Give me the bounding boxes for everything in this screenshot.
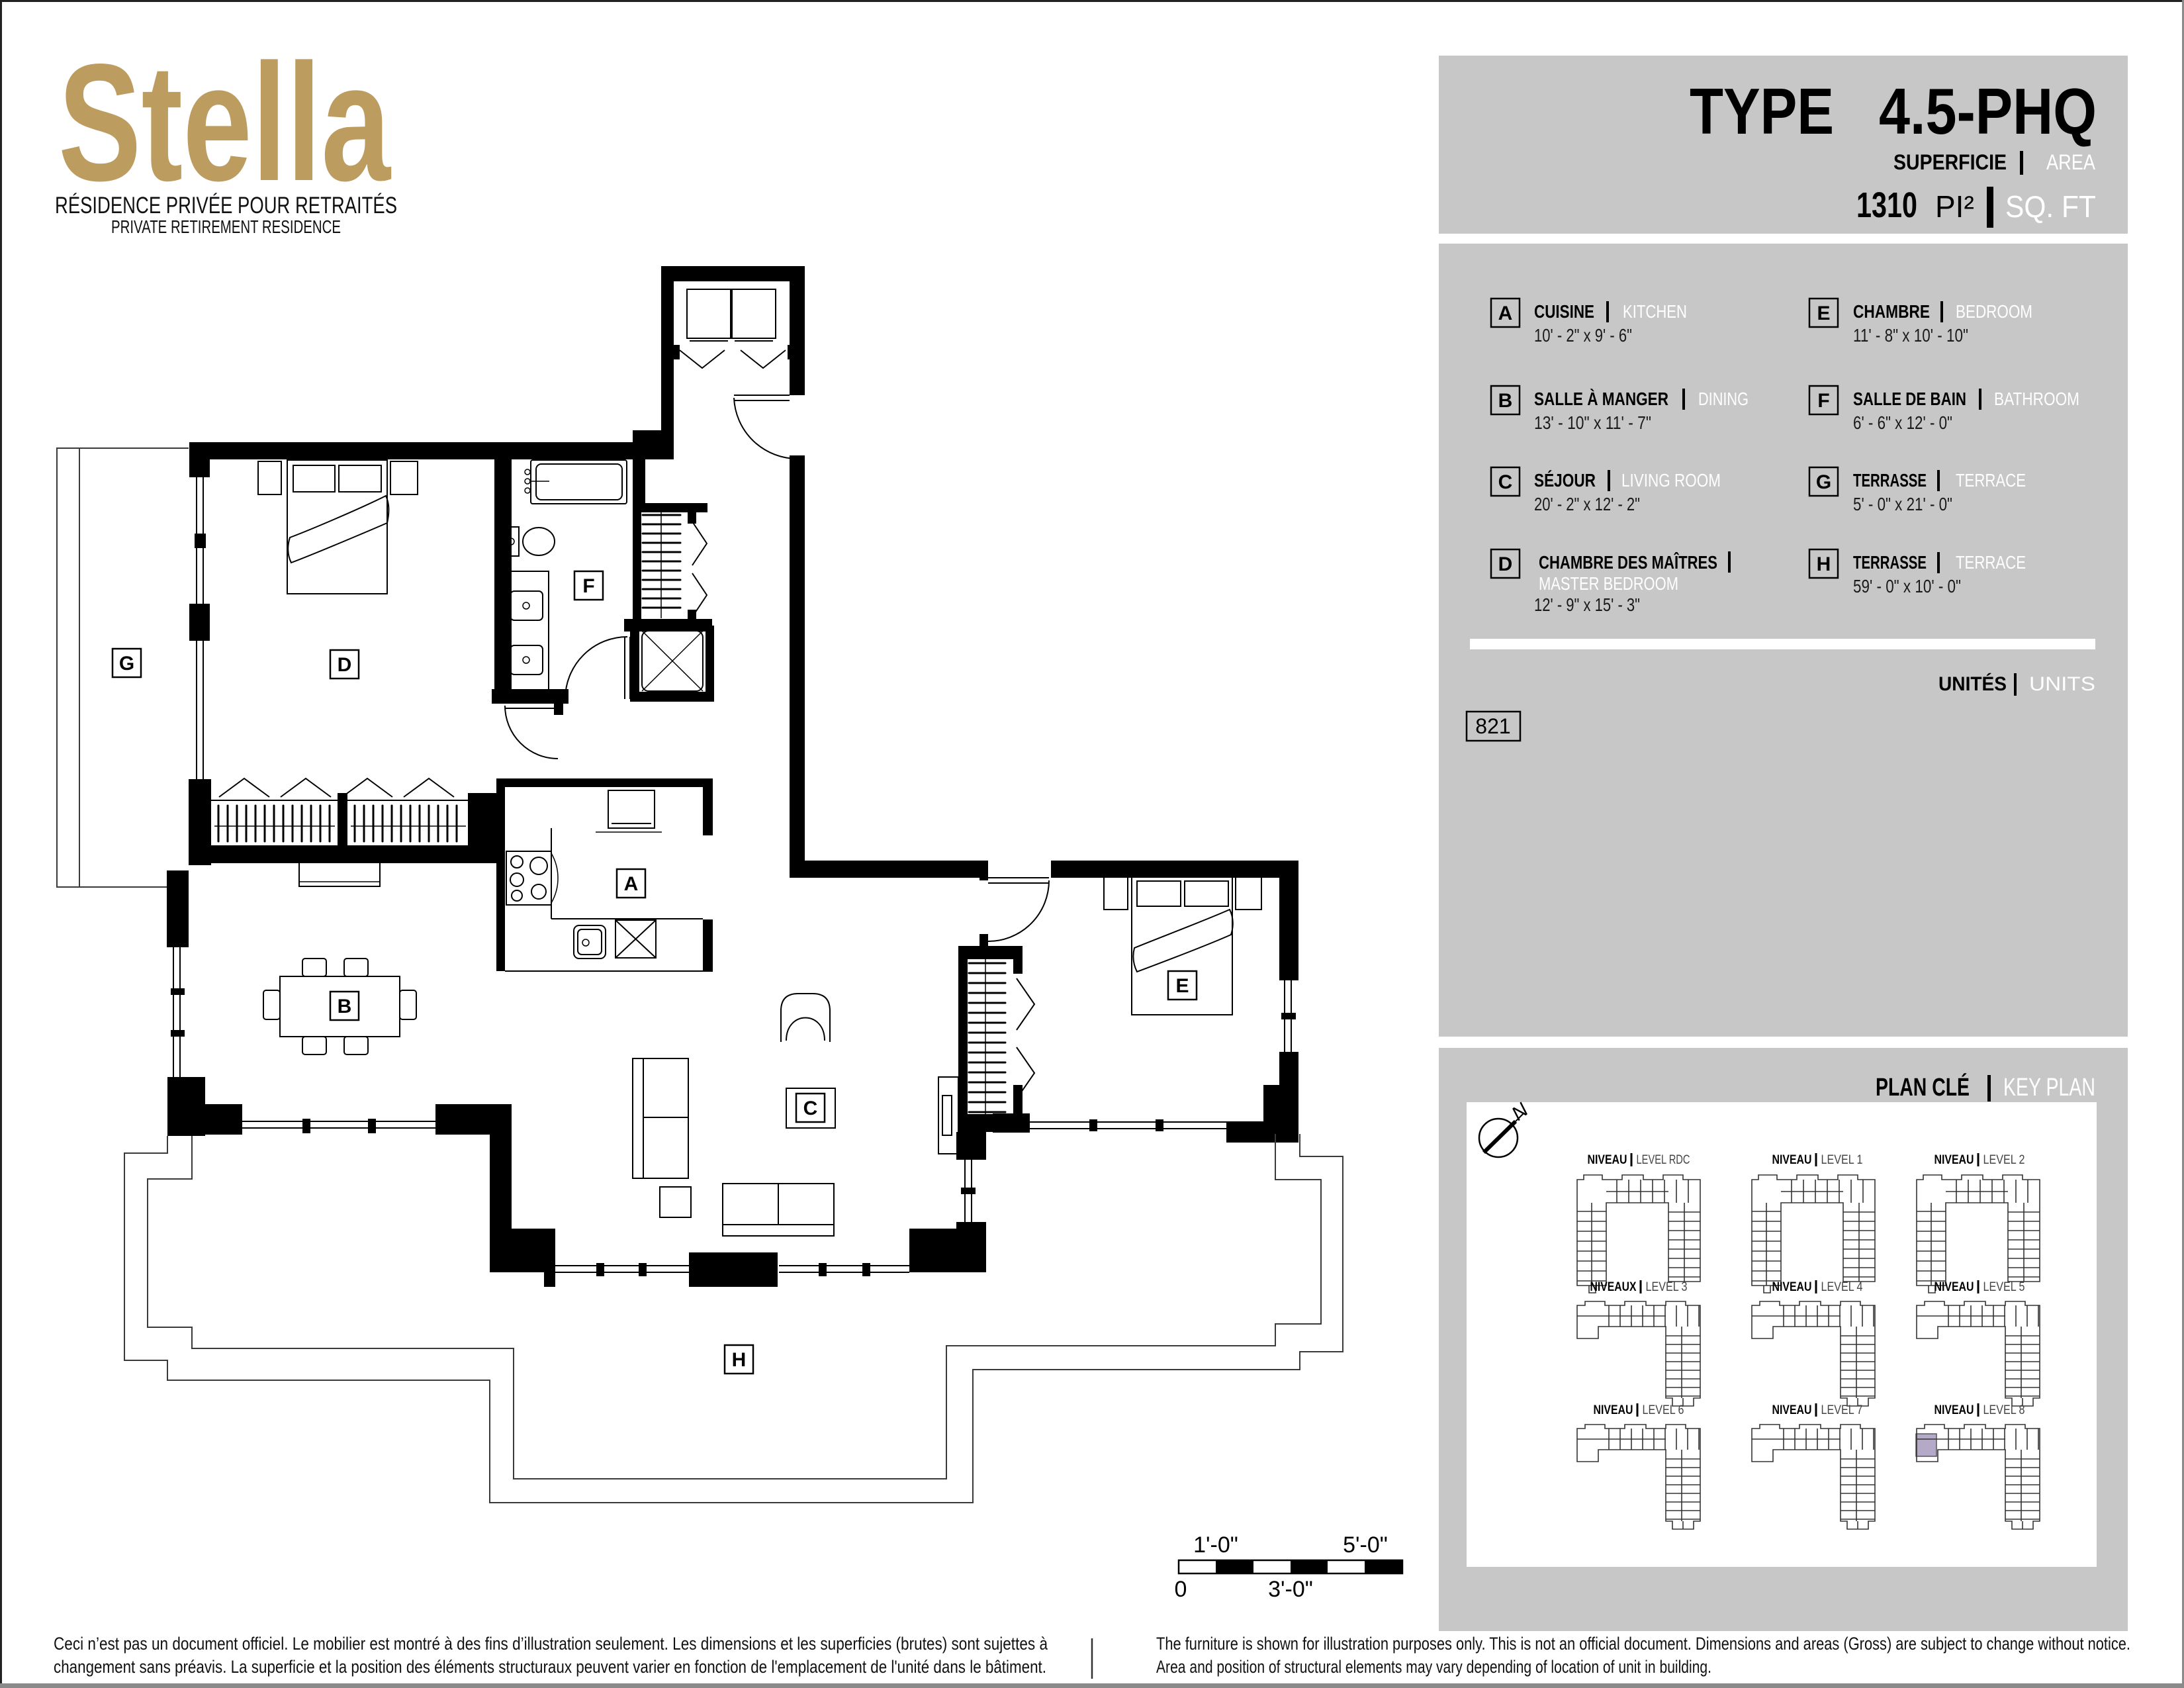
svg-text:LEVEL 1: LEVEL 1: [1821, 1153, 1863, 1167]
svg-text:821: 821: [1475, 714, 1510, 738]
svg-text:B: B: [1498, 390, 1513, 412]
svg-text:TERRASSE: TERRASSE: [1853, 552, 1927, 573]
svg-text:TERRACE: TERRACE: [1956, 552, 2026, 573]
svg-text:PI²: PI²: [1935, 189, 1974, 224]
svg-text:NIVEAU: NIVEAU: [1772, 1153, 1812, 1167]
svg-text:SALLE À MANGER: SALLE À MANGER: [1534, 389, 1668, 409]
svg-text:C: C: [803, 1098, 818, 1119]
svg-text:10' - 2" x 9' - 6": 10' - 2" x 9' - 6": [1534, 325, 1632, 346]
svg-text:1'-0": 1'-0": [1193, 1532, 1238, 1558]
svg-text:H: H: [732, 1349, 747, 1371]
svg-text:LEVEL 7: LEVEL 7: [1821, 1403, 1863, 1417]
svg-text:RÉSIDENCE PRIVÉE POUR RETRAITÉ: RÉSIDENCE PRIVÉE POUR RETRAITÉS: [55, 193, 397, 218]
svg-text:F: F: [1817, 390, 1829, 412]
svg-text:PLAN CLÉ: PLAN CLÉ: [1876, 1072, 1970, 1102]
svg-text:PRIVATE RETIREMENT RESIDENCE: PRIVATE RETIREMENT RESIDENCE: [111, 216, 341, 237]
svg-text:NIVEAU: NIVEAU: [1772, 1403, 1812, 1417]
svg-text:G: G: [1816, 471, 1831, 493]
svg-text:MASTER BEDROOM: MASTER BEDROOM: [1539, 573, 1678, 594]
svg-text:D: D: [1498, 553, 1513, 575]
svg-text:5' - 0" x 21' - 0": 5' - 0" x 21' - 0": [1853, 494, 1952, 514]
svg-text:BATHROOM: BATHROOM: [1994, 389, 2079, 409]
svg-text:5'-0": 5'-0": [1343, 1532, 1388, 1558]
svg-text:DINING: DINING: [1698, 389, 1749, 409]
svg-text:H: H: [1817, 553, 1831, 575]
svg-text:TYPE: TYPE: [1690, 75, 1834, 148]
svg-text:A: A: [624, 873, 639, 895]
svg-text:LEVEL 3: LEVEL 3: [1646, 1280, 1688, 1294]
svg-text:Stella: Stella: [58, 30, 391, 216]
svg-text:LEVEL RDC: LEVEL RDC: [1637, 1153, 1690, 1167]
svg-text:59' - 0" x 10' - 0": 59' - 0" x 10' - 0": [1853, 576, 1961, 596]
svg-text:LEVEL 4: LEVEL 4: [1821, 1280, 1863, 1294]
svg-text:CHAMBRE: CHAMBRE: [1853, 301, 1930, 322]
svg-text:LIVING ROOM: LIVING ROOM: [1621, 470, 1721, 491]
svg-text:NIVEAU: NIVEAU: [1934, 1280, 1974, 1294]
svg-text:B: B: [338, 996, 352, 1017]
svg-text:UNITÉS: UNITÉS: [1938, 673, 2007, 695]
svg-text:CHAMBRE DES MAÎTRES: CHAMBRE DES MAÎTRES: [1539, 552, 1717, 573]
svg-text:Area and position of structura: Area and position of structural elements…: [1156, 1657, 1711, 1677]
svg-text:G: G: [119, 653, 134, 675]
svg-text:LEVEL 8: LEVEL 8: [1983, 1403, 2025, 1417]
svg-text:SQ. FT: SQ. FT: [2005, 189, 2096, 224]
svg-text:NIVEAUX: NIVEAUX: [1590, 1280, 1637, 1294]
svg-text:E: E: [1175, 975, 1189, 997]
svg-text:D: D: [338, 654, 352, 676]
svg-text:The furniture is shown for ill: The furniture is shown for illustration …: [1156, 1634, 2130, 1654]
svg-text:12' - 9" x 15' - 3": 12' - 9" x 15' - 3": [1534, 594, 1640, 615]
svg-text:KITCHEN: KITCHEN: [1623, 301, 1687, 322]
svg-text:13' - 10" x 11' - 7": 13' - 10" x 11' - 7": [1534, 412, 1651, 433]
svg-text:TERRASSE: TERRASSE: [1853, 470, 1927, 491]
svg-text:4.5-PHQ: 4.5-PHQ: [1879, 75, 2097, 148]
svg-text:LEVEL 2: LEVEL 2: [1983, 1153, 2025, 1167]
svg-text:E: E: [1817, 303, 1830, 324]
svg-text:NIVEAU: NIVEAU: [1594, 1403, 1633, 1417]
svg-text:BEDROOM: BEDROOM: [1956, 301, 2032, 322]
svg-text:NIVEAU: NIVEAU: [1934, 1153, 1974, 1167]
svg-text:20' - 2" x 12' - 2": 20' - 2" x 12' - 2": [1534, 494, 1640, 514]
svg-text:TERRACE: TERRACE: [1956, 470, 2026, 491]
svg-text:changement sans préavis. La su: changement sans préavis. La superficie e…: [54, 1657, 1046, 1677]
svg-text:NIVEAU: NIVEAU: [1588, 1153, 1627, 1167]
svg-text:1310: 1310: [1856, 185, 1917, 225]
svg-text:SALLE DE BAIN: SALLE DE BAIN: [1853, 389, 1966, 409]
svg-text:KEY PLAN: KEY PLAN: [2003, 1074, 2095, 1102]
svg-text:A: A: [1498, 303, 1513, 324]
svg-text:SUPERFICIE: SUPERFICIE: [1893, 150, 2007, 174]
svg-text:NIVEAU: NIVEAU: [1772, 1280, 1812, 1294]
svg-text:SÉJOUR: SÉJOUR: [1534, 470, 1596, 491]
svg-text:Ceci n’est pas un document off: Ceci n’est pas un document officiel. Le …: [54, 1634, 1048, 1654]
svg-text:UNITS: UNITS: [2029, 673, 2095, 695]
svg-text:CUISINE: CUISINE: [1534, 301, 1594, 322]
svg-text:AREA: AREA: [2046, 150, 2096, 174]
svg-text:LEVEL 5: LEVEL 5: [1983, 1280, 2025, 1294]
svg-text:LEVEL 6: LEVEL 6: [1643, 1403, 1684, 1417]
svg-text:0: 0: [1175, 1577, 1187, 1602]
svg-text:NIVEAU: NIVEAU: [1934, 1403, 1974, 1417]
svg-text:6' - 6" x 12' - 0": 6' - 6" x 12' - 0": [1853, 412, 1952, 433]
svg-text:C: C: [1498, 471, 1513, 493]
svg-text:3'-0": 3'-0": [1268, 1577, 1313, 1602]
svg-text:F: F: [582, 575, 594, 597]
svg-text:11' - 8" x 10' - 10": 11' - 8" x 10' - 10": [1853, 325, 1968, 346]
